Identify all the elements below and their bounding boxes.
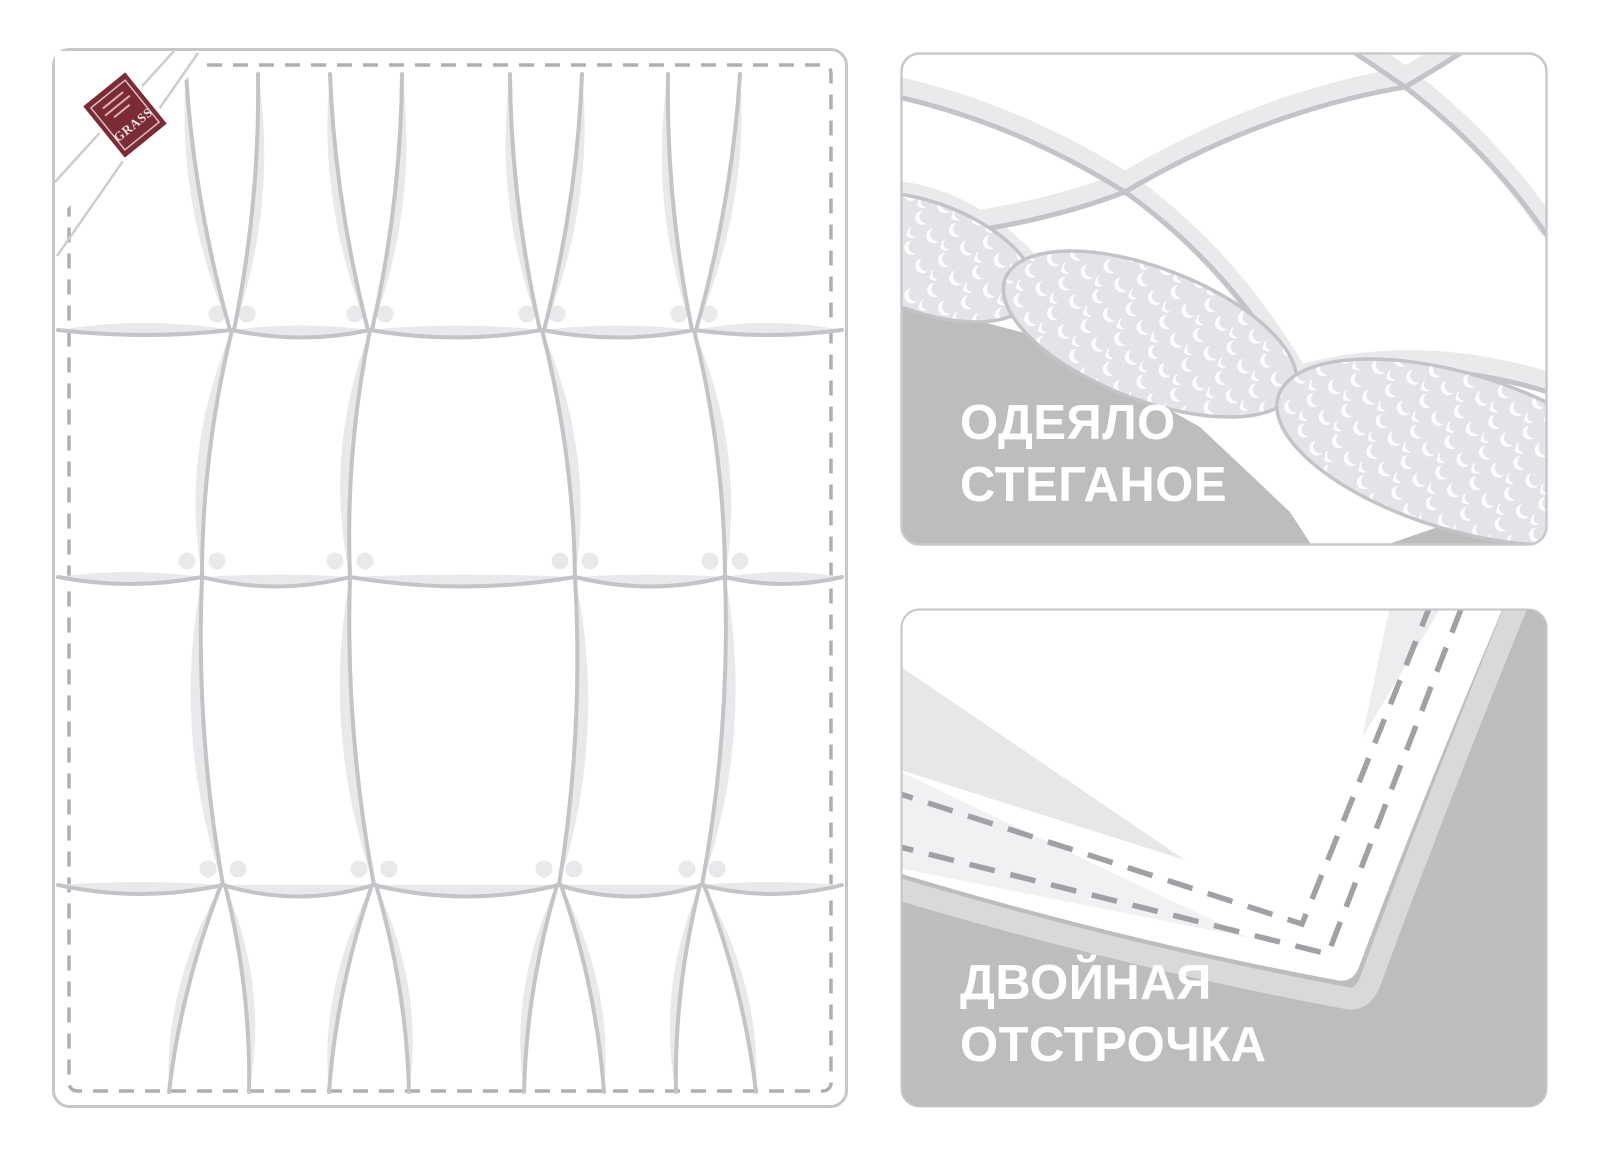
- quilting-caption-line1: ОДЕЯЛО: [960, 392, 1227, 454]
- quilting-detail-panel: ОДЕЯЛО СТЕГАНОЕ: [900, 52, 1548, 546]
- quilting-caption: ОДЕЯЛО СТЕГАНОЕ: [960, 392, 1227, 516]
- stitch-caption-line2: ОТСТРОЧКА: [960, 1014, 1267, 1076]
- product-illustration-page: GRASS ОДЕЯЛО СТЕГАНОЕ ДВОЙНАЯ ОТСТРОЧКА: [0, 0, 1600, 1154]
- double-stitch-detail-panel: ДВОЙНАЯ ОТСТРОЧКА: [900, 608, 1548, 1108]
- quilting-caption-line2: СТЕГАНОЕ: [960, 454, 1227, 516]
- quilted-blanket-illustration: GRASS: [52, 48, 848, 1108]
- stitch-caption-line1: ДВОЙНАЯ: [960, 952, 1267, 1014]
- blanket-artwork: GRASS: [52, 48, 848, 1108]
- stitch-caption: ДВОЙНАЯ ОТСТРОЧКА: [960, 952, 1267, 1076]
